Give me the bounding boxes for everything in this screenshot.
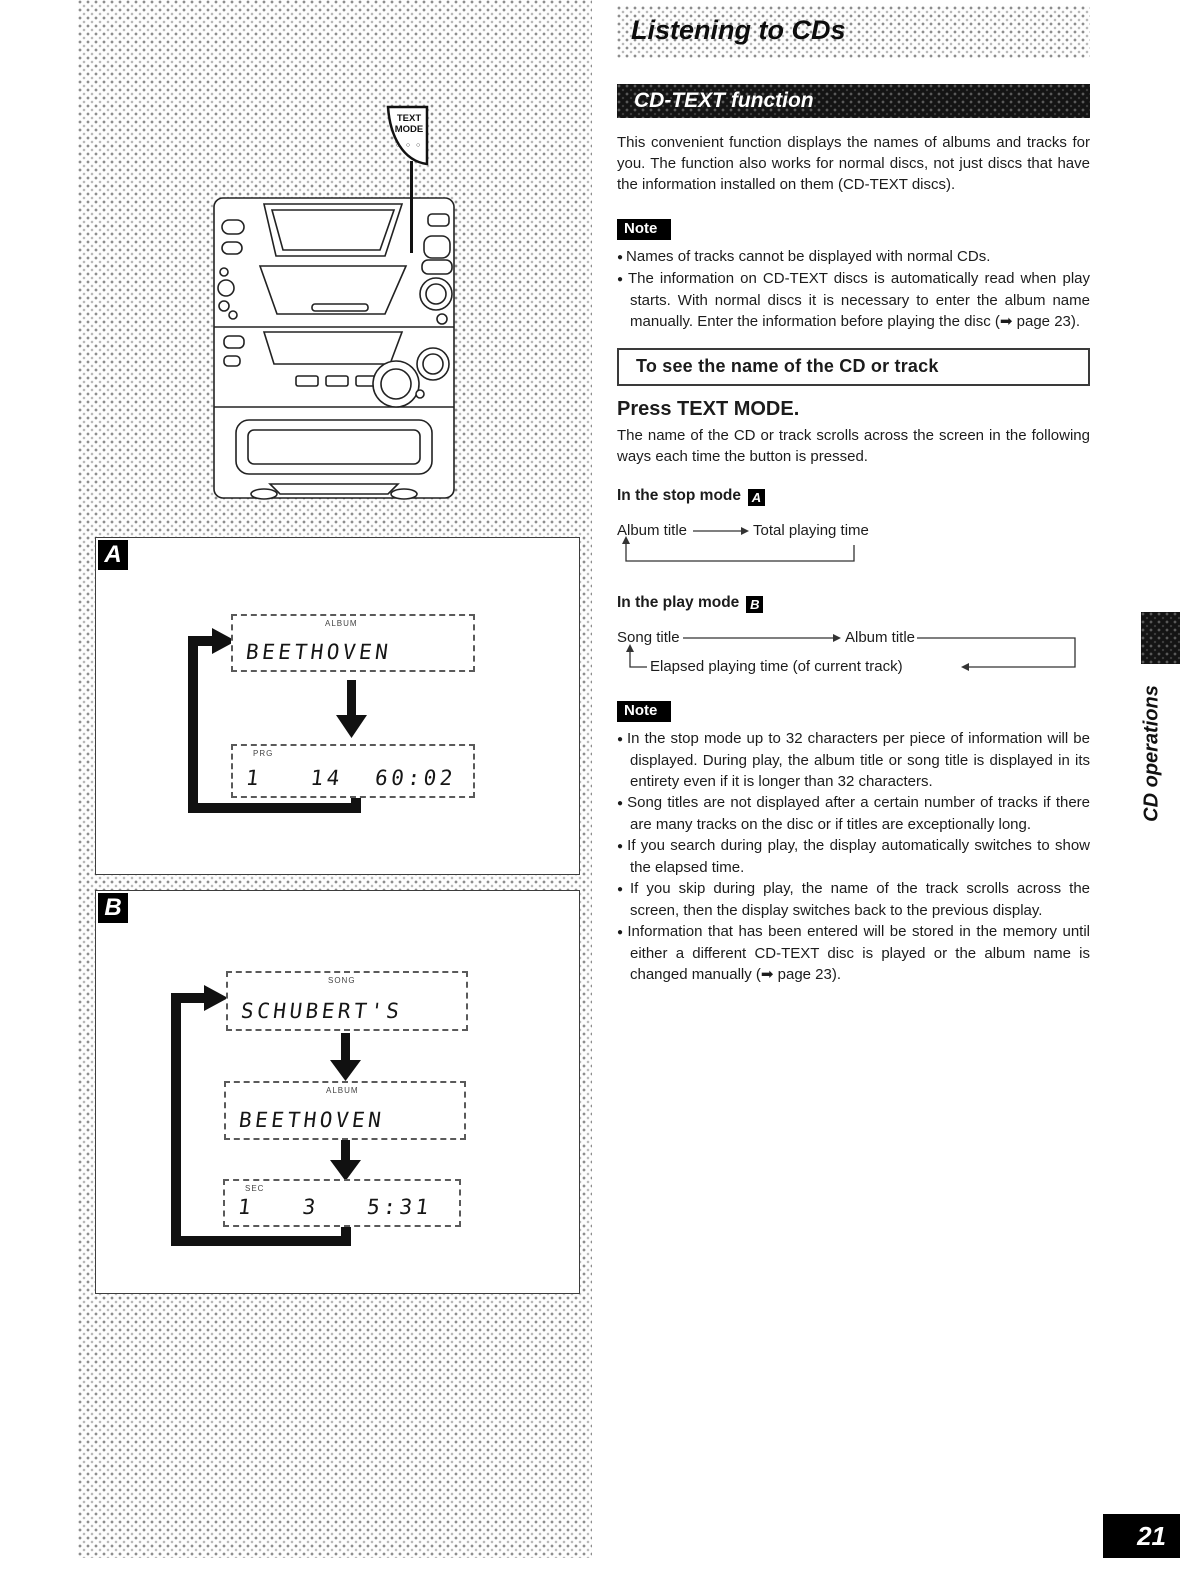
play-mode-diagram: Song title Album title Elapsed playing t… xyxy=(617,627,1090,689)
play-mode-label: In the play modeB xyxy=(617,594,1090,613)
album-title-node: Album title xyxy=(845,629,915,646)
stop-mode-label-text: In the stop mode xyxy=(617,487,741,504)
note-item: If you skip during play, the name of the… xyxy=(617,878,1090,921)
left-arrowhead-icon xyxy=(961,663,969,671)
note-item: Song titles are not displayed after a ce… xyxy=(617,792,1090,835)
lcd-display-album-title: ALBUM BEETHOVEN xyxy=(231,614,475,672)
manual-page: TEXT MODE ○ ○ ○ A ALBUM BEETHOVEN PRG 1 … xyxy=(0,0,1180,1584)
note-item: The information on CD-TEXT discs is auto… xyxy=(617,268,1090,332)
right-arrowhead-icon xyxy=(204,985,228,1011)
text-mode-button-label: TEXT MODE xyxy=(389,113,429,135)
stop-mode-diagram: Album title Total playing time xyxy=(617,520,1090,574)
note-item: Names of tracks cannot be displayed with… xyxy=(617,246,1090,268)
note-badge: Note xyxy=(617,219,671,240)
play-mode-label-text: In the play mode xyxy=(617,594,739,611)
note-item: In the stop mode up to 32 characters per… xyxy=(617,728,1090,792)
note-item: If you search during play, the display a… xyxy=(617,835,1090,878)
stop-mode-label: In the stop modeA xyxy=(617,487,1090,506)
stop-mode-example-box: A ALBUM BEETHOVEN PRG 1 14 60:02 xyxy=(95,537,580,875)
elapsed-time-node: Elapsed playing time (of current track) xyxy=(650,658,903,675)
down-arrow-icon xyxy=(330,1160,361,1181)
stereo-system-illustration xyxy=(212,196,456,502)
lcd-display-text: 1 14 60:02 xyxy=(245,766,458,790)
boxed-heading: To see the name of the CD or track xyxy=(617,348,1090,386)
intro-paragraph: This convenient function displays the na… xyxy=(617,132,1090,195)
lcd-display-text: SCHUBERT'S xyxy=(240,999,404,1023)
right-arrowhead-icon xyxy=(741,527,749,535)
total-time-node: Total playing time xyxy=(753,522,869,539)
callout-pointer-line xyxy=(410,161,413,253)
step-heading: Press TEXT MODE. xyxy=(617,398,1090,421)
page-title: Listening to CDs xyxy=(617,6,1090,46)
lcd-indicator: PRG xyxy=(253,749,273,758)
play-mode-example-box: B SONG SCHUBERT'S ALBUM BEETHOVEN SEC 1 … xyxy=(95,890,580,1294)
lcd-display-elapsed-time: SEC 1 3 5:31 xyxy=(223,1179,461,1227)
page-header: Listening to CDs xyxy=(617,6,1090,58)
chapter-side-tab: CD operations xyxy=(1141,649,1164,859)
lcd-indicator: ALBUM xyxy=(326,1086,359,1095)
callout-dots: ○ ○ ○ xyxy=(392,142,426,149)
song-title-node: Song title xyxy=(617,629,680,646)
step-body: The name of the CD or track scrolls acro… xyxy=(617,425,1090,467)
lcd-display-text: BEETHOVEN xyxy=(245,640,393,664)
right-arrowhead-icon xyxy=(833,634,841,642)
note-list: In the stop mode up to 32 characters per… xyxy=(617,728,1090,985)
lcd-display-text: BEETHOVEN xyxy=(238,1108,386,1132)
lcd-indicator: ALBUM xyxy=(325,619,358,628)
down-arrow-icon xyxy=(330,1060,361,1081)
lcd-display-total-time: PRG 1 14 60:02 xyxy=(231,744,475,798)
lcd-indicator: SONG xyxy=(328,976,356,985)
lcd-indicator: SEC xyxy=(245,1184,264,1193)
section-title: CD-TEXT function xyxy=(617,84,1090,113)
note-list: Names of tracks cannot be displayed with… xyxy=(617,246,1090,332)
lcd-display-text: 1 3 5:31 xyxy=(237,1195,434,1219)
loop-arrow-diagram xyxy=(96,538,579,874)
text-mode-callout: TEXT MODE ○ ○ ○ xyxy=(379,104,431,168)
page-number: 21 xyxy=(1103,1514,1180,1558)
lcd-display-album-title: ALBUM BEETHOVEN xyxy=(224,1081,466,1140)
down-arrow-icon xyxy=(336,715,367,738)
album-title-node: Album title xyxy=(617,522,687,539)
note-badge: Note xyxy=(617,701,671,722)
section-banner: CD-TEXT function xyxy=(617,84,1090,118)
marker-a: A xyxy=(748,489,765,506)
note-item: Information that has been entered will b… xyxy=(617,921,1090,985)
lcd-display-song-title: SONG SCHUBERT'S xyxy=(226,971,468,1031)
text-column: Listening to CDs CD-TEXT function This c… xyxy=(617,0,1090,985)
marker-b: B xyxy=(746,596,763,613)
